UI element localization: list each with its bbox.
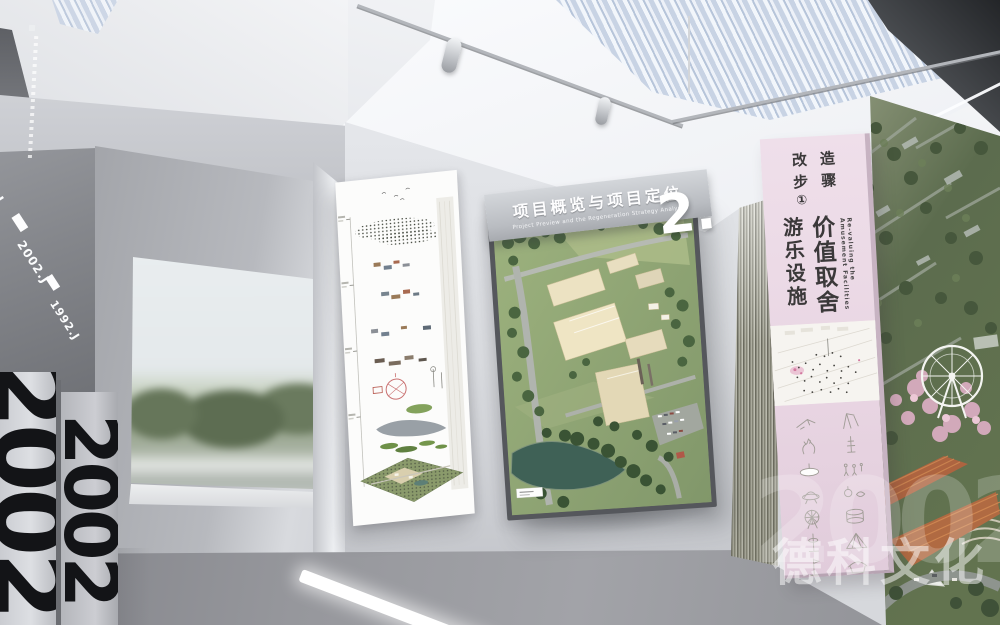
saucer-ride-icon: [795, 483, 826, 507]
site-map-dots-graphic: [770, 320, 879, 406]
banner-phrase-amusement: 游乐设施: [781, 216, 807, 317]
section-number: 2.: [654, 183, 718, 243]
banner-english-caption: Re-valuing the Amusement Facilities: [838, 217, 857, 314]
signal-tower-icon: [835, 433, 866, 457]
timeline-diagram-graphic: [335, 170, 475, 526]
drop-tower-icon: [798, 531, 829, 555]
kite-icon: [791, 411, 822, 435]
window-view-trees: [131, 255, 313, 491]
step-char: 改: [791, 149, 807, 171]
step-number-circle: ①: [796, 193, 808, 209]
hanging-wire: [688, 16, 690, 94]
window: [131, 255, 313, 491]
step-char: 步: [793, 171, 809, 193]
canopy-tent-icon: [842, 553, 873, 577]
number-pillar-back: 2002: [61, 392, 118, 625]
figures-icon: [836, 457, 867, 481]
swing-flag-icon: [834, 409, 865, 433]
banner-phrase-value: 价值取舍: [808, 215, 837, 316]
banner-site-map: [770, 320, 879, 406]
exhibition-hall-scene: .BJ 2002.J 1992.J 2002 2002: [0, 0, 1000, 625]
flag-pole-icon: [799, 555, 830, 579]
step-char: 造: [819, 147, 835, 169]
ride-icon-grid: [785, 409, 879, 579]
number-pillar-front: 2002: [0, 372, 56, 625]
site-plan-panel: [487, 199, 717, 520]
site-plan-graphic: [492, 205, 711, 516]
step-char: 骤: [821, 169, 837, 191]
ferris-wheel-icon: [797, 507, 828, 531]
disc-ride-icon: [794, 459, 825, 483]
pyramid-tent-icon: [841, 529, 872, 553]
spinner-fish-icon: [838, 481, 869, 505]
pillar-number: 2002: [0, 372, 56, 617]
horse-head-icon: [793, 435, 824, 459]
pillar-number: 2002: [61, 414, 118, 604]
drum-carousel-icon: [839, 505, 870, 529]
signage-square-icon: [29, 25, 35, 31]
step-label: 改 造 步 骤 ①: [785, 147, 844, 209]
banner-title: 游乐设施 价值取舍 Re-valuing the Amusement Facil…: [764, 212, 874, 318]
timeline-diagram-panel: [335, 170, 475, 526]
